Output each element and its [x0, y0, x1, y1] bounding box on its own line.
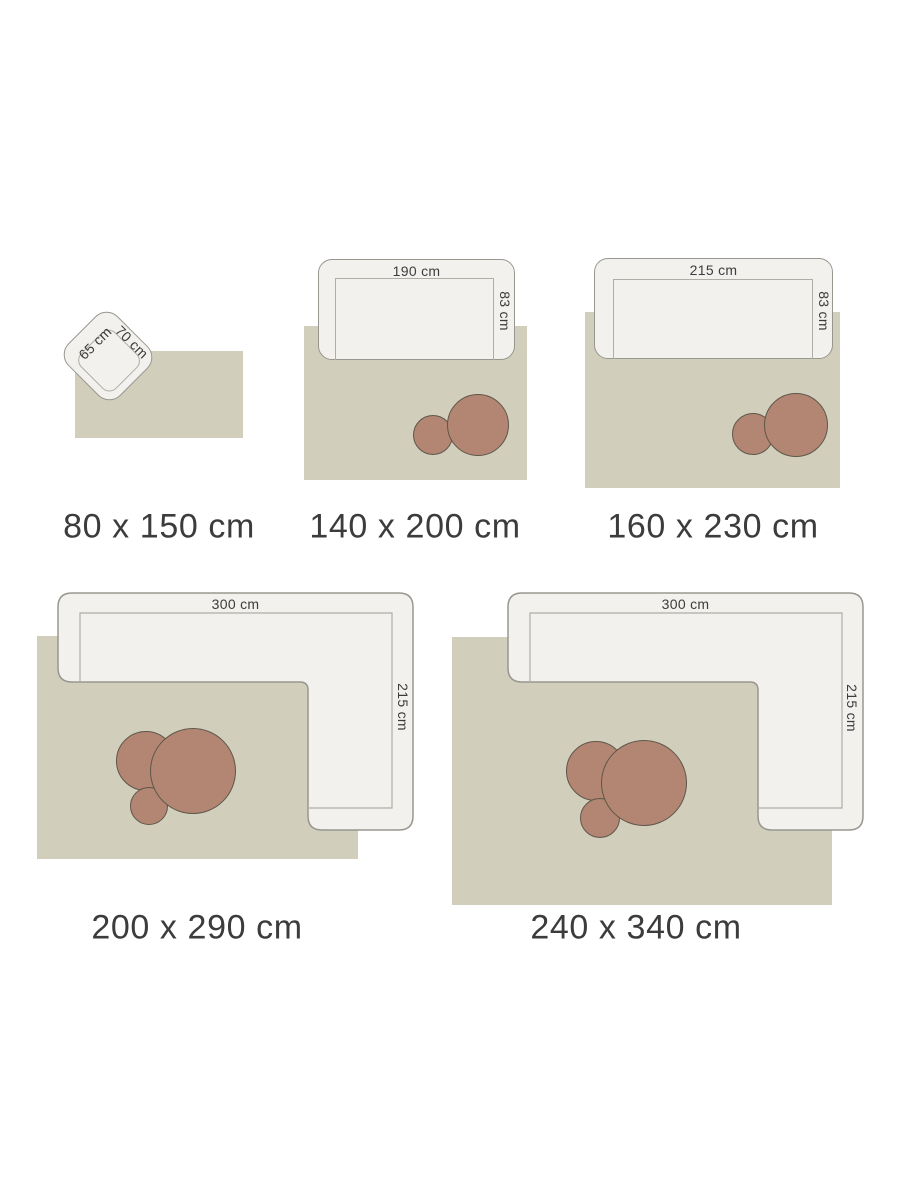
corner-sofa — [508, 593, 863, 830]
corner-sofa-depth-label: 215 cm — [844, 684, 860, 732]
corner-sofa-width-label: 300 cm — [508, 596, 863, 612]
rug-size-label: 200 x 290 cm — [91, 909, 302, 948]
sofa-seat-outline — [613, 279, 813, 359]
sofa: 215 cm 83 cm — [594, 258, 833, 359]
corner-sofa-outline — [58, 593, 413, 830]
side-table-large — [764, 393, 828, 457]
side-table-large — [601, 740, 687, 826]
rug-size-label: 140 x 200 cm — [309, 508, 520, 547]
corner-sofa-depth-label: 215 cm — [395, 683, 411, 731]
sofa-depth-label: 83 cm — [816, 291, 832, 331]
rug-size-label: 240 x 340 cm — [530, 909, 741, 948]
sofa-width-label: 190 cm — [319, 263, 514, 279]
rug-size-label: 160 x 230 cm — [607, 508, 818, 547]
sofa: 190 cm 83 cm — [318, 259, 515, 360]
side-table-large — [447, 394, 509, 456]
sofa-seat-outline — [335, 278, 494, 360]
sofa-width-label: 215 cm — [595, 262, 832, 278]
corner-sofa — [58, 593, 413, 830]
corner-sofa-width-label: 300 cm — [58, 596, 413, 612]
corner-sofa-outline — [508, 593, 863, 830]
sofa-depth-label: 83 cm — [497, 291, 513, 331]
side-table-large — [150, 728, 236, 814]
rug-size-guide: 65 cm 70 cm 80 x 150 cm 190 cm 83 cm 140… — [0, 0, 900, 1200]
rug-size-label: 80 x 150 cm — [63, 508, 255, 547]
